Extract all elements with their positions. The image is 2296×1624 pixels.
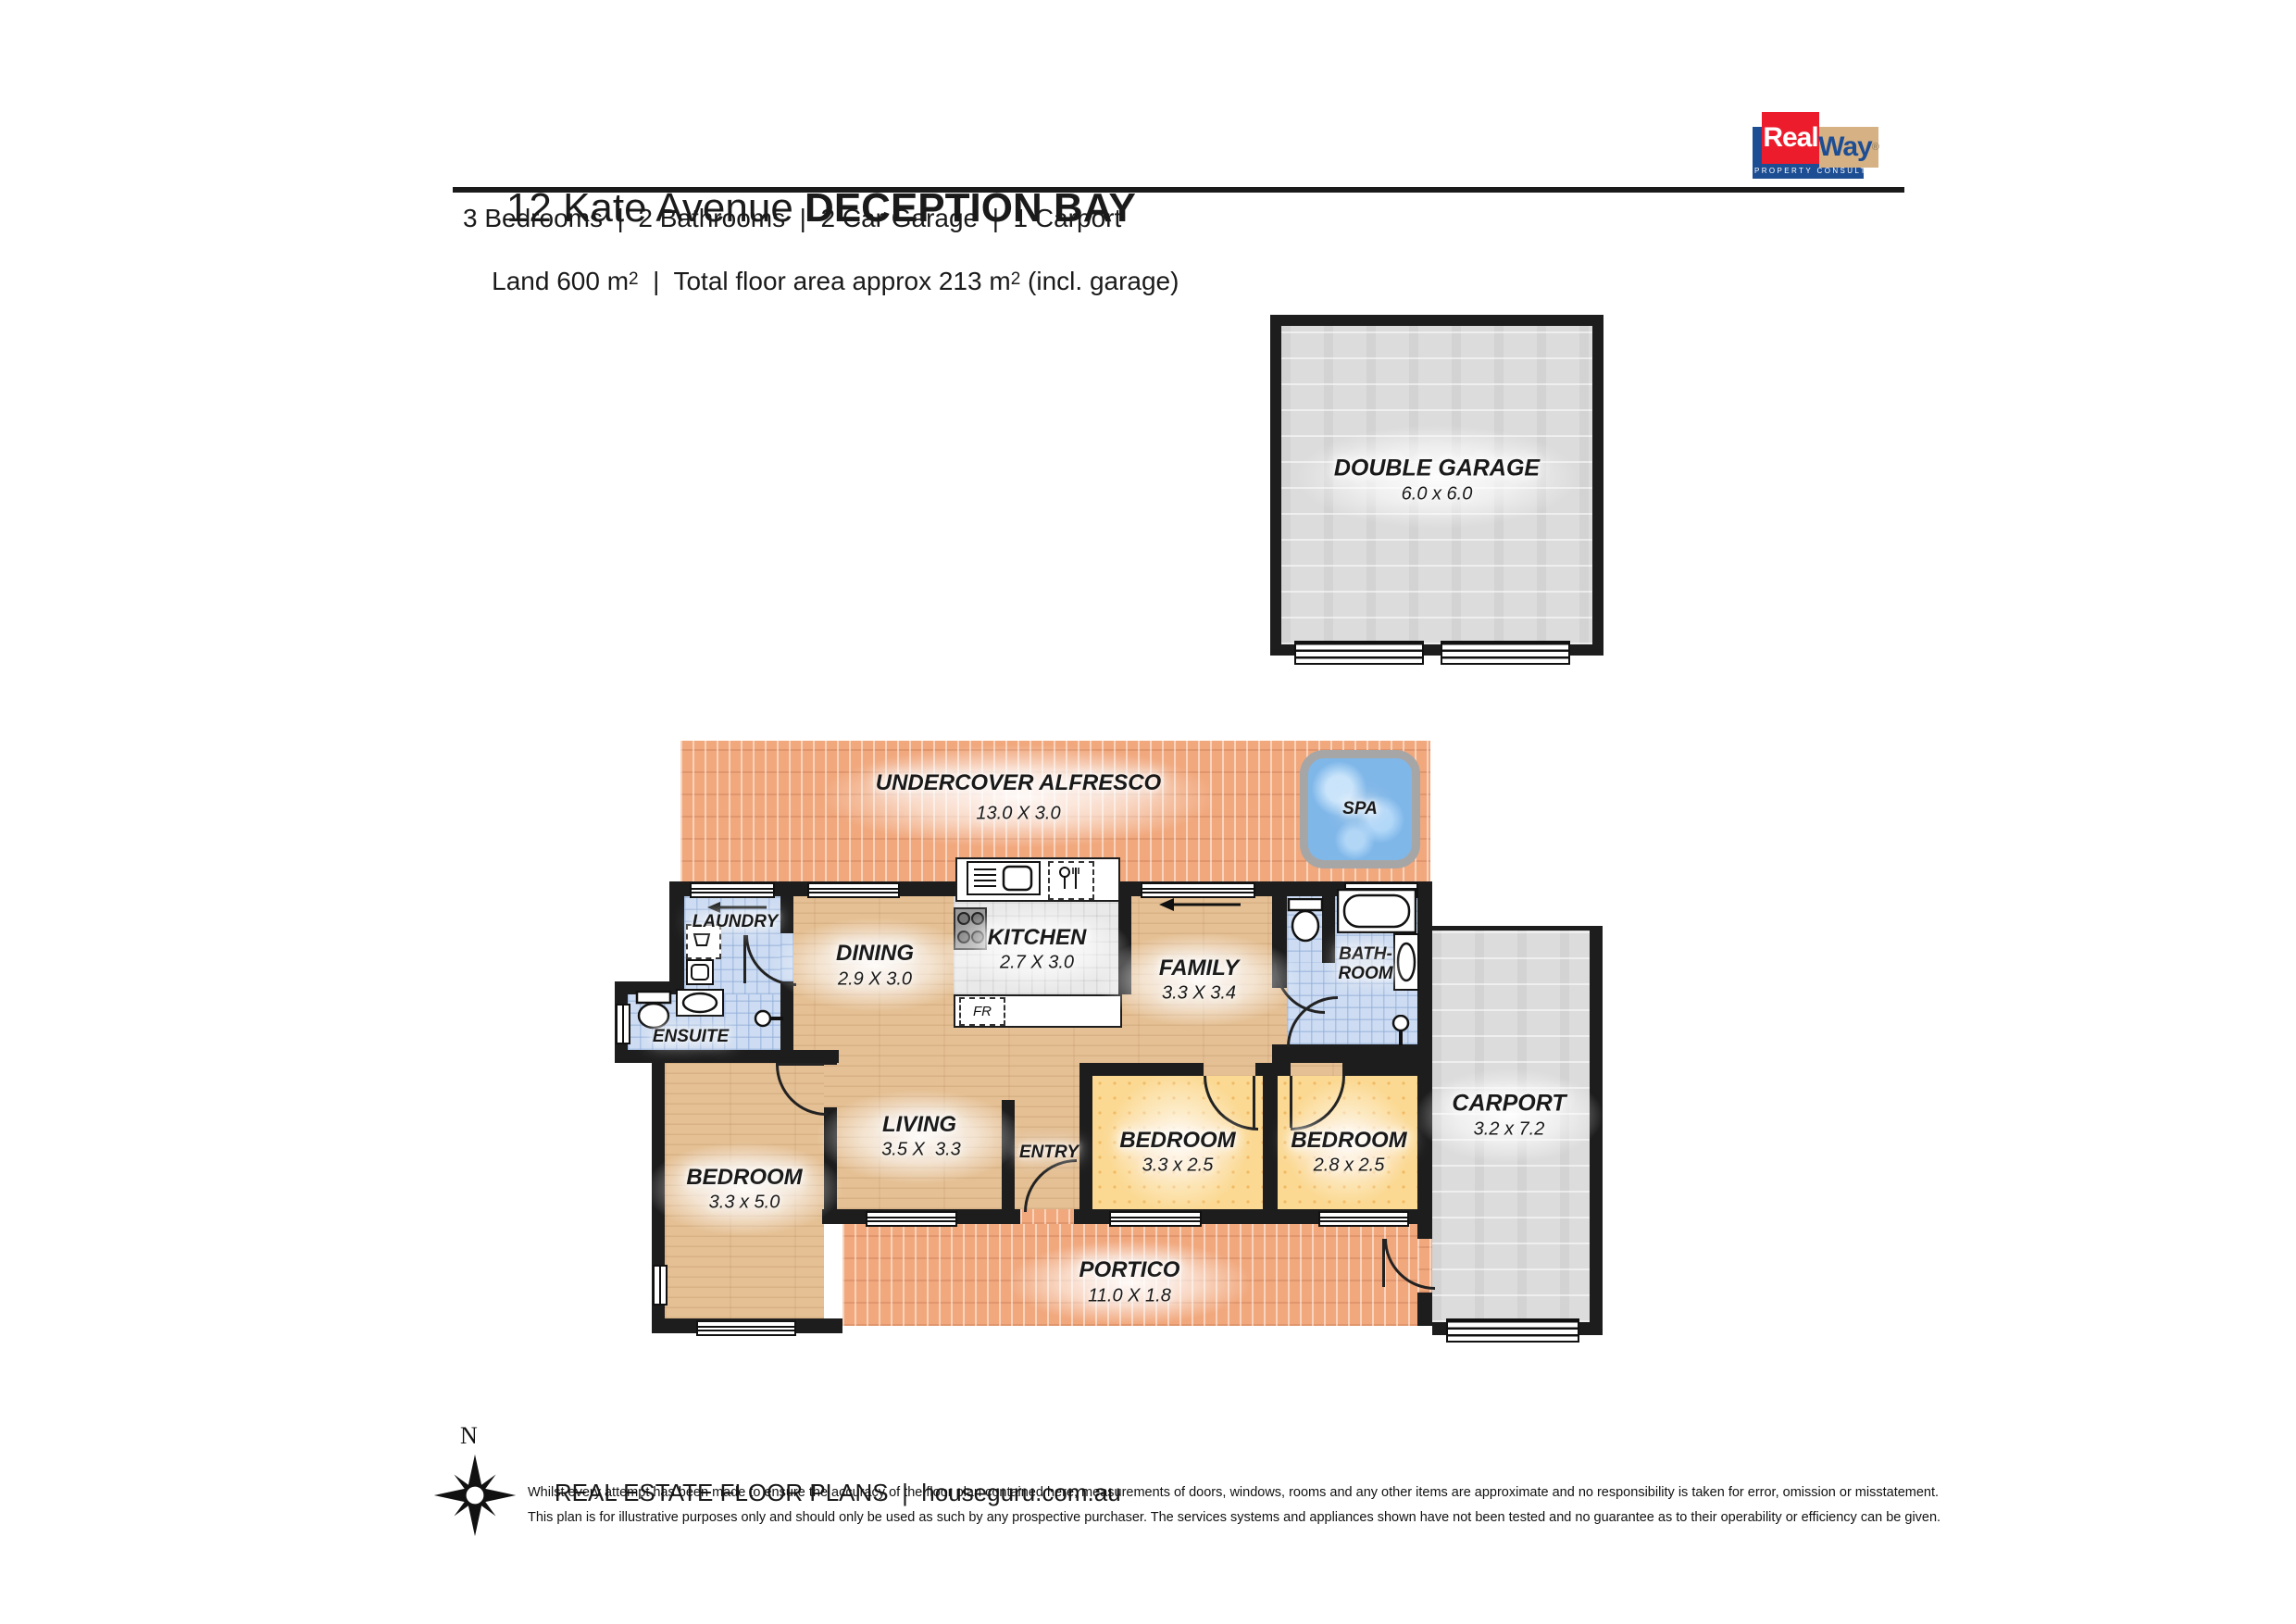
portico-dims: 11.0 X 1.8 xyxy=(1088,1286,1171,1307)
wall-bedrooms-top-c xyxy=(1342,1063,1432,1076)
kitchen-sink-icon xyxy=(967,861,1041,895)
dining-dims: 2.9 X 3.0 xyxy=(838,969,912,991)
carport-top-line xyxy=(1432,926,1590,931)
toilet-icon xyxy=(633,991,674,1030)
basin-icon xyxy=(676,989,724,1017)
wall-living-right xyxy=(1002,1100,1015,1224)
bedroom1-dims: 3.3 x 2.5 xyxy=(1142,1156,1214,1177)
door-leaf xyxy=(743,935,746,983)
floor-area: | Total floor area approx 213 m xyxy=(639,267,1011,295)
window xyxy=(1318,1211,1409,1227)
dining-label: DINING xyxy=(836,941,914,967)
spa-label: SPA xyxy=(1342,799,1378,819)
logo-real-text: Real xyxy=(1763,122,1817,154)
carport-dims: 3.2 x 7.2 xyxy=(1474,1119,1545,1141)
door-leaf xyxy=(776,1063,824,1066)
shower-icon xyxy=(752,1006,783,1031)
header-divider xyxy=(453,187,1904,193)
logo-tan-box: Way® xyxy=(1819,127,1878,168)
registered-mark: ® xyxy=(1872,142,1879,153)
bathroom-label-line1: BATH- xyxy=(1339,944,1392,965)
shower-icon xyxy=(1391,1015,1411,1046)
logo-way-text: Way xyxy=(1818,131,1872,163)
wall-bedroom1-left xyxy=(1079,1063,1092,1224)
laundry-tub-icon xyxy=(686,959,714,985)
window xyxy=(690,882,775,898)
dishwasher-icon xyxy=(1055,865,1083,893)
wall-bedroom-divider xyxy=(1263,1063,1278,1224)
fridge-label: FR xyxy=(973,1004,992,1019)
area-line: Land 600 m2 | Total floor area approx 21… xyxy=(463,237,1179,326)
wall-kitchen-right xyxy=(1118,881,1131,994)
carport-label: CARPORT xyxy=(1452,1091,1566,1118)
alfresco-label: UNDERCOVER ALFRESCO xyxy=(876,770,1161,796)
bedroom2-dims: 2.8 x 2.5 xyxy=(1314,1156,1385,1177)
disclaimer-line-2: This plan is for illustrative purposes o… xyxy=(528,1510,1940,1525)
bedroom1-label: BEDROOM xyxy=(1119,1128,1235,1154)
wall-bath-bottom xyxy=(1272,1044,1432,1063)
floor-plan-page: 12 Kate Avenue DECEPTION BAY 3 Bedrooms … xyxy=(0,0,2296,1624)
garage-label: DOUBLE GARAGE xyxy=(1334,456,1540,482)
carport-opening xyxy=(1446,1318,1579,1343)
portico-label: PORTICO xyxy=(1079,1257,1180,1283)
kitchen-dims: 2.7 X 3.0 xyxy=(1000,953,1074,974)
land-sup: 2 xyxy=(629,269,639,289)
wall-laundry-right-a xyxy=(780,881,793,933)
ensuite-label: ENSUITE xyxy=(653,1027,729,1047)
fridge-space: FR xyxy=(959,997,1005,1026)
garage-dims: 6.0 x 6.0 xyxy=(1402,484,1473,506)
laundry-label: LAUNDRY xyxy=(693,912,779,932)
garage-door xyxy=(1441,641,1570,665)
bathtub-icon xyxy=(1337,889,1416,933)
washing-machine-icon xyxy=(693,931,711,949)
window xyxy=(653,1265,668,1305)
garage-door xyxy=(1294,641,1424,665)
living-label: LIVING xyxy=(882,1112,956,1138)
window xyxy=(807,882,900,898)
bedroom2-label: BEDROOM xyxy=(1291,1128,1406,1154)
disclaimer-line-1: Whilst every attempt has been made to en… xyxy=(528,1485,1939,1500)
bath-basin-icon xyxy=(1393,933,1419,991)
stove-icon xyxy=(954,907,987,950)
logo-tagline: PROPERTY CONSULTANTS xyxy=(1754,167,1862,175)
logo-red-box: Real xyxy=(1762,112,1819,164)
entry-label: ENTRY xyxy=(1019,1143,1079,1163)
door-leaf xyxy=(1253,1076,1255,1128)
window xyxy=(696,1320,796,1336)
family-dims: 3.3 X 3.4 xyxy=(1162,983,1236,1005)
window xyxy=(866,1211,957,1227)
compass-icon xyxy=(431,1452,518,1539)
living-dims: 3.5 X 3.3 xyxy=(881,1140,961,1161)
bathroom-label-line2: ROOM xyxy=(1338,964,1392,984)
sliding-arrow-icon xyxy=(1159,896,1242,913)
door-leaf xyxy=(1290,1076,1292,1128)
wall-wc-bath xyxy=(1322,881,1335,963)
wall-ensuite-bottom xyxy=(615,1050,839,1063)
window xyxy=(1109,1211,1202,1227)
wall-master-right-b xyxy=(824,1107,837,1224)
master-bedroom-label: BEDROOM xyxy=(686,1165,802,1191)
kitchen-label: KITCHEN xyxy=(988,925,1087,951)
wall-portico-carport-a xyxy=(1417,1224,1432,1239)
floor-sup: 2 xyxy=(1011,269,1021,289)
features-line: 3 Bedrooms | 2 Bathrooms | 2 Car Garage … xyxy=(463,204,1121,233)
land-area: Land 600 m xyxy=(492,267,629,295)
wall-portico-carport-b xyxy=(1417,1293,1432,1326)
wall-laundry-left xyxy=(669,881,684,994)
master-bedroom-dims: 3.3 x 5.0 xyxy=(709,1193,780,1214)
toilet-icon xyxy=(1287,898,1324,943)
compass-north-label: N xyxy=(460,1422,478,1450)
floor-suffix: (incl. garage) xyxy=(1020,267,1179,295)
family-label: FAMILY xyxy=(1159,956,1239,981)
wall-bedrooms-top-a xyxy=(1079,1063,1204,1076)
window xyxy=(616,1004,630,1044)
door-leaf xyxy=(1382,1239,1385,1287)
alfresco-dims: 13.0 X 3.0 xyxy=(976,804,1060,825)
wall-master-right-a xyxy=(824,1050,837,1065)
realway-logo: Real Way® PROPERTY CONSULTANTS xyxy=(1753,112,1882,181)
carport-right-wall xyxy=(1590,926,1603,1335)
